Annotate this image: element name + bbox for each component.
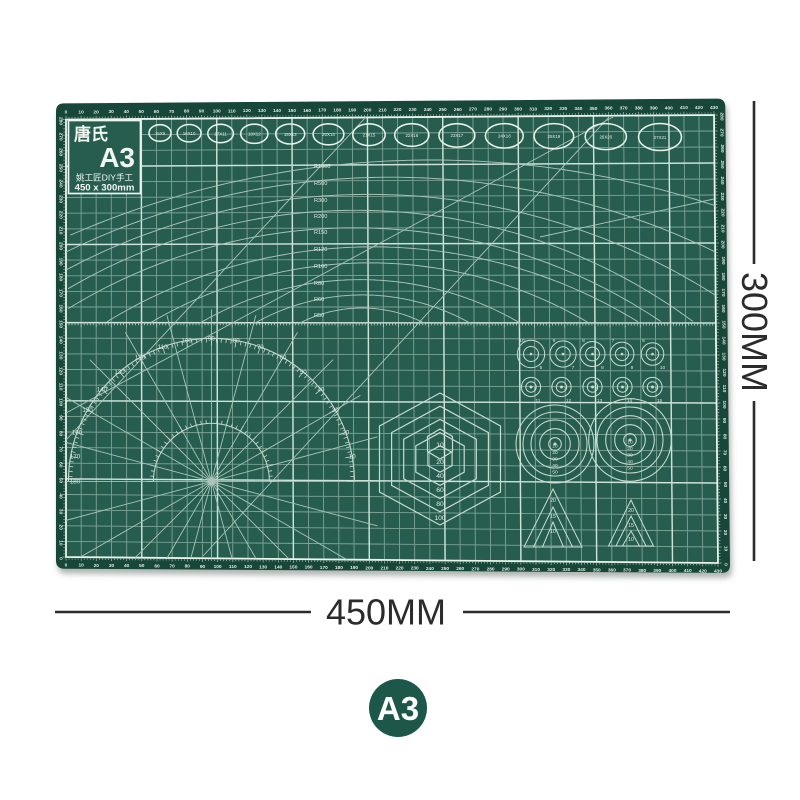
svg-text:100: 100 bbox=[58, 398, 64, 406]
svg-text:270: 270 bbox=[719, 128, 725, 136]
svg-text:5: 5 bbox=[655, 386, 658, 392]
svg-text:9: 9 bbox=[631, 365, 634, 371]
svg-text:170: 170 bbox=[70, 454, 81, 461]
svg-text:240: 240 bbox=[719, 176, 725, 184]
svg-text:140: 140 bbox=[97, 386, 108, 393]
svg-text:R60: R60 bbox=[314, 297, 324, 303]
svg-text:90: 90 bbox=[200, 564, 206, 570]
svg-text:20: 20 bbox=[58, 525, 64, 531]
svg-text:10: 10 bbox=[722, 546, 728, 552]
svg-text:180: 180 bbox=[58, 273, 64, 281]
svg-text:270: 270 bbox=[469, 107, 477, 113]
svg-text:15: 15 bbox=[550, 514, 556, 520]
svg-text:220: 220 bbox=[58, 211, 64, 219]
svg-text:18X12: 18X12 bbox=[248, 132, 261, 137]
svg-text:150: 150 bbox=[288, 108, 296, 114]
svg-text:唐氏: 唐氏 bbox=[74, 124, 108, 144]
svg-text:100: 100 bbox=[181, 338, 192, 345]
svg-text:150: 150 bbox=[82, 407, 93, 414]
svg-text:160: 160 bbox=[72, 430, 83, 437]
svg-text:10: 10 bbox=[519, 338, 525, 344]
svg-text:0: 0 bbox=[723, 563, 729, 566]
svg-text:180: 180 bbox=[70, 478, 81, 485]
svg-text:10: 10 bbox=[436, 442, 444, 449]
svg-text:110: 110 bbox=[229, 564, 237, 570]
svg-text:70: 70 bbox=[169, 109, 175, 115]
svg-text:23X17: 23X17 bbox=[451, 133, 464, 138]
svg-text:400: 400 bbox=[668, 568, 676, 574]
svg-text:17X11: 17X11 bbox=[214, 131, 227, 136]
svg-text:250: 250 bbox=[439, 107, 447, 113]
svg-text:260: 260 bbox=[58, 148, 64, 156]
svg-text:140: 140 bbox=[273, 108, 281, 114]
svg-text:R500: R500 bbox=[314, 181, 327, 187]
svg-text:22X16: 22X16 bbox=[405, 133, 418, 138]
svg-text:R1000: R1000 bbox=[314, 164, 330, 170]
svg-text:70: 70 bbox=[58, 446, 64, 452]
svg-text:210: 210 bbox=[58, 226, 64, 234]
svg-text:10: 10 bbox=[349, 454, 356, 461]
svg-text:25X19: 25X19 bbox=[548, 134, 561, 139]
svg-text:90: 90 bbox=[721, 418, 727, 424]
svg-text:150: 150 bbox=[720, 320, 726, 328]
svg-text:60: 60 bbox=[436, 487, 444, 494]
svg-text:270: 270 bbox=[58, 133, 64, 141]
svg-text:250: 250 bbox=[58, 164, 64, 172]
svg-text:300MM: 300MM bbox=[734, 272, 775, 392]
svg-text:280: 280 bbox=[484, 107, 492, 113]
svg-text:340: 340 bbox=[577, 567, 585, 573]
svg-text:360: 360 bbox=[608, 568, 616, 574]
svg-text:260: 260 bbox=[454, 107, 462, 113]
svg-text:0: 0 bbox=[65, 563, 68, 569]
svg-text:R100: R100 bbox=[314, 264, 327, 270]
svg-text:40: 40 bbox=[124, 563, 130, 569]
svg-text:170: 170 bbox=[720, 288, 726, 296]
svg-text:130: 130 bbox=[114, 369, 125, 376]
svg-text:20: 20 bbox=[722, 530, 728, 536]
svg-text:110: 110 bbox=[228, 108, 236, 114]
svg-text:40: 40 bbox=[436, 473, 444, 480]
svg-text:20: 20 bbox=[93, 109, 99, 115]
svg-text:180: 180 bbox=[333, 108, 341, 114]
svg-text:80: 80 bbox=[721, 434, 727, 440]
svg-text:110: 110 bbox=[58, 383, 64, 391]
svg-text:姚工匠DIY手工: 姚工匠DIY手工 bbox=[76, 172, 134, 183]
svg-text:60: 60 bbox=[722, 466, 728, 472]
svg-text:320: 320 bbox=[544, 106, 552, 112]
svg-text:60: 60 bbox=[279, 355, 286, 362]
svg-text:420: 420 bbox=[699, 568, 707, 574]
svg-text:430: 430 bbox=[714, 569, 722, 575]
svg-text:200: 200 bbox=[58, 242, 64, 250]
svg-text:R200: R200 bbox=[314, 214, 327, 220]
svg-text:80: 80 bbox=[233, 338, 240, 345]
svg-text:50: 50 bbox=[627, 466, 633, 472]
svg-text:130: 130 bbox=[58, 351, 64, 359]
svg-text:10: 10 bbox=[58, 540, 64, 546]
svg-text:160: 160 bbox=[303, 108, 311, 114]
svg-text:A3: A3 bbox=[99, 142, 135, 173]
svg-text:140: 140 bbox=[58, 336, 64, 344]
svg-text:10: 10 bbox=[627, 440, 633, 446]
svg-text:6: 6 bbox=[540, 365, 543, 371]
svg-text:290: 290 bbox=[502, 567, 510, 573]
svg-text:130: 130 bbox=[259, 564, 267, 570]
svg-text:26X20: 26X20 bbox=[599, 134, 612, 139]
svg-text:50: 50 bbox=[300, 369, 307, 376]
svg-text:450 x 300mm: 450 x 300mm bbox=[75, 183, 135, 194]
svg-text:21X15: 21X15 bbox=[363, 133, 376, 138]
svg-text:10: 10 bbox=[628, 537, 634, 543]
svg-text:450MM: 450MM bbox=[326, 592, 446, 633]
svg-text:90: 90 bbox=[58, 415, 64, 421]
svg-text:240: 240 bbox=[424, 107, 432, 113]
svg-text:3: 3 bbox=[595, 386, 598, 392]
svg-text:130: 130 bbox=[258, 108, 266, 114]
svg-text:10: 10 bbox=[79, 563, 85, 569]
svg-text:120: 120 bbox=[243, 108, 251, 114]
svg-text:180: 180 bbox=[335, 565, 343, 571]
svg-text:10: 10 bbox=[552, 444, 558, 450]
svg-text:R50: R50 bbox=[314, 313, 324, 319]
svg-text:16X10: 16X10 bbox=[183, 131, 196, 136]
svg-text:150: 150 bbox=[289, 565, 297, 571]
svg-text:50: 50 bbox=[58, 478, 64, 484]
svg-text:30: 30 bbox=[552, 457, 558, 463]
svg-text:R150: R150 bbox=[314, 230, 327, 236]
svg-text:30: 30 bbox=[109, 109, 115, 115]
svg-text:370: 370 bbox=[623, 568, 631, 574]
svg-text:190: 190 bbox=[720, 256, 726, 264]
svg-text:110: 110 bbox=[158, 344, 168, 351]
svg-text:2: 2 bbox=[564, 386, 567, 392]
svg-text:390: 390 bbox=[653, 568, 661, 574]
svg-text:40: 40 bbox=[552, 463, 558, 469]
svg-text:140: 140 bbox=[274, 565, 282, 571]
svg-text:30: 30 bbox=[109, 563, 115, 569]
svg-text:9: 9 bbox=[553, 338, 556, 344]
svg-text:40: 40 bbox=[318, 386, 325, 393]
svg-text:230: 230 bbox=[411, 566, 419, 572]
svg-text:4: 4 bbox=[625, 386, 628, 392]
svg-text:170: 170 bbox=[318, 108, 326, 114]
svg-text:8: 8 bbox=[601, 365, 604, 371]
svg-text:120: 120 bbox=[721, 368, 727, 376]
svg-text:110: 110 bbox=[721, 385, 727, 393]
svg-text:10: 10 bbox=[660, 365, 666, 371]
svg-text:100: 100 bbox=[213, 109, 221, 115]
svg-text:40: 40 bbox=[722, 498, 728, 504]
svg-text:430: 430 bbox=[710, 105, 718, 111]
svg-text:280: 280 bbox=[487, 566, 495, 572]
svg-text:20: 20 bbox=[94, 563, 100, 569]
svg-text:80: 80 bbox=[184, 109, 190, 115]
svg-text:20: 20 bbox=[628, 508, 634, 514]
svg-text:330: 330 bbox=[562, 567, 570, 573]
svg-text:0: 0 bbox=[65, 110, 68, 116]
svg-text:320: 320 bbox=[547, 567, 555, 573]
svg-text:290: 290 bbox=[499, 107, 507, 113]
svg-text:230: 230 bbox=[409, 107, 417, 113]
svg-text:90: 90 bbox=[199, 109, 205, 115]
svg-text:200: 200 bbox=[720, 240, 726, 248]
svg-text:27X21: 27X21 bbox=[654, 135, 667, 140]
svg-text:20: 20 bbox=[342, 430, 349, 437]
svg-text:250: 250 bbox=[719, 160, 725, 168]
svg-text:400: 400 bbox=[665, 105, 673, 111]
svg-text:R120: R120 bbox=[314, 247, 327, 253]
svg-text:390: 390 bbox=[650, 105, 658, 111]
svg-text:40: 40 bbox=[627, 459, 633, 465]
svg-text:40: 40 bbox=[124, 109, 130, 115]
svg-text:280: 280 bbox=[58, 117, 64, 125]
svg-text:50: 50 bbox=[722, 482, 728, 488]
svg-text:300: 300 bbox=[514, 106, 522, 112]
svg-text:210: 210 bbox=[720, 224, 726, 232]
svg-text:20: 20 bbox=[436, 459, 444, 466]
svg-text:340: 340 bbox=[574, 106, 582, 112]
svg-text:20: 20 bbox=[550, 498, 556, 504]
svg-text:R80: R80 bbox=[314, 281, 324, 287]
svg-text:11: 11 bbox=[536, 398, 541, 404]
svg-text:160: 160 bbox=[720, 304, 726, 312]
svg-text:50: 50 bbox=[139, 109, 145, 115]
svg-text:200: 200 bbox=[365, 565, 373, 571]
svg-text:120: 120 bbox=[244, 564, 252, 570]
svg-text:220: 220 bbox=[719, 208, 725, 216]
svg-text:60: 60 bbox=[154, 109, 160, 115]
svg-text:10: 10 bbox=[78, 109, 84, 115]
svg-text:13: 13 bbox=[597, 398, 603, 404]
svg-text:6: 6 bbox=[642, 338, 645, 344]
svg-text:230: 230 bbox=[719, 192, 725, 200]
svg-text:330: 330 bbox=[559, 106, 567, 112]
svg-text:310: 310 bbox=[529, 106, 537, 112]
svg-text:80: 80 bbox=[436, 501, 444, 508]
svg-text:200: 200 bbox=[363, 107, 371, 113]
svg-text:24X18: 24X18 bbox=[498, 134, 511, 139]
svg-text:310: 310 bbox=[532, 567, 540, 573]
svg-text:1: 1 bbox=[534, 386, 537, 392]
svg-text:130: 130 bbox=[721, 352, 727, 360]
svg-text:40: 40 bbox=[58, 493, 64, 499]
svg-text:20X14: 20X14 bbox=[322, 132, 335, 137]
svg-text:180: 180 bbox=[720, 272, 726, 280]
svg-text:15X9: 15X9 bbox=[155, 131, 166, 136]
svg-text:10: 10 bbox=[550, 529, 556, 535]
svg-text:60: 60 bbox=[58, 462, 64, 468]
svg-text:260: 260 bbox=[719, 144, 725, 152]
svg-text:240: 240 bbox=[58, 179, 64, 187]
svg-text:300: 300 bbox=[517, 567, 525, 573]
svg-text:420: 420 bbox=[695, 105, 703, 111]
svg-text:170: 170 bbox=[58, 289, 64, 297]
svg-text:R300: R300 bbox=[314, 198, 327, 204]
svg-text:70: 70 bbox=[257, 344, 264, 351]
svg-text:30: 30 bbox=[58, 509, 64, 515]
svg-text:50: 50 bbox=[552, 470, 558, 476]
svg-text:15: 15 bbox=[628, 523, 634, 529]
svg-text:30: 30 bbox=[722, 514, 728, 520]
svg-text:190: 190 bbox=[348, 108, 356, 114]
svg-text:370: 370 bbox=[620, 106, 628, 112]
svg-text:170: 170 bbox=[320, 565, 328, 571]
svg-text:A3: A3 bbox=[377, 690, 419, 727]
svg-text:20: 20 bbox=[627, 446, 633, 452]
svg-text:19X13: 19X13 bbox=[284, 132, 297, 137]
svg-text:30: 30 bbox=[627, 453, 633, 459]
svg-text:100: 100 bbox=[721, 400, 727, 408]
svg-text:220: 220 bbox=[393, 107, 401, 113]
svg-text:15: 15 bbox=[657, 398, 663, 404]
svg-text:280: 280 bbox=[719, 112, 725, 120]
svg-text:350: 350 bbox=[593, 567, 601, 573]
svg-text:70: 70 bbox=[169, 564, 175, 570]
svg-text:160: 160 bbox=[58, 304, 64, 312]
svg-text:7: 7 bbox=[572, 365, 575, 371]
svg-text:350: 350 bbox=[589, 106, 597, 112]
svg-text:60: 60 bbox=[154, 563, 160, 569]
svg-text:220: 220 bbox=[396, 566, 404, 572]
svg-text:360: 360 bbox=[604, 106, 612, 112]
svg-text:80: 80 bbox=[185, 564, 191, 570]
svg-text:70: 70 bbox=[722, 450, 728, 456]
svg-text:90: 90 bbox=[208, 335, 215, 342]
svg-text:50: 50 bbox=[139, 563, 145, 569]
svg-text:7: 7 bbox=[612, 338, 615, 344]
svg-text:380: 380 bbox=[638, 568, 646, 574]
svg-text:160: 160 bbox=[305, 565, 313, 571]
svg-text:210: 210 bbox=[378, 107, 386, 113]
svg-text:270: 270 bbox=[471, 566, 479, 572]
svg-text:80: 80 bbox=[58, 431, 64, 437]
svg-text:30: 30 bbox=[332, 407, 339, 414]
svg-text:120: 120 bbox=[58, 367, 64, 375]
svg-text:190: 190 bbox=[58, 258, 64, 266]
svg-text:260: 260 bbox=[456, 566, 464, 572]
svg-text:150: 150 bbox=[58, 320, 64, 328]
svg-text:380: 380 bbox=[635, 106, 643, 112]
svg-text:410: 410 bbox=[684, 568, 692, 574]
svg-text:0: 0 bbox=[58, 557, 64, 560]
svg-text:140: 140 bbox=[721, 336, 727, 344]
svg-text:250: 250 bbox=[441, 566, 449, 572]
svg-text:20: 20 bbox=[552, 450, 558, 456]
svg-text:410: 410 bbox=[680, 105, 688, 111]
svg-text:240: 240 bbox=[426, 566, 434, 572]
svg-text:12: 12 bbox=[566, 398, 572, 404]
svg-text:120: 120 bbox=[135, 355, 146, 362]
svg-text:100: 100 bbox=[434, 515, 446, 522]
svg-text:210: 210 bbox=[380, 565, 388, 571]
svg-text:100: 100 bbox=[214, 564, 222, 570]
svg-text:8: 8 bbox=[582, 338, 585, 344]
svg-text:230: 230 bbox=[58, 195, 64, 203]
svg-text:190: 190 bbox=[350, 565, 358, 571]
